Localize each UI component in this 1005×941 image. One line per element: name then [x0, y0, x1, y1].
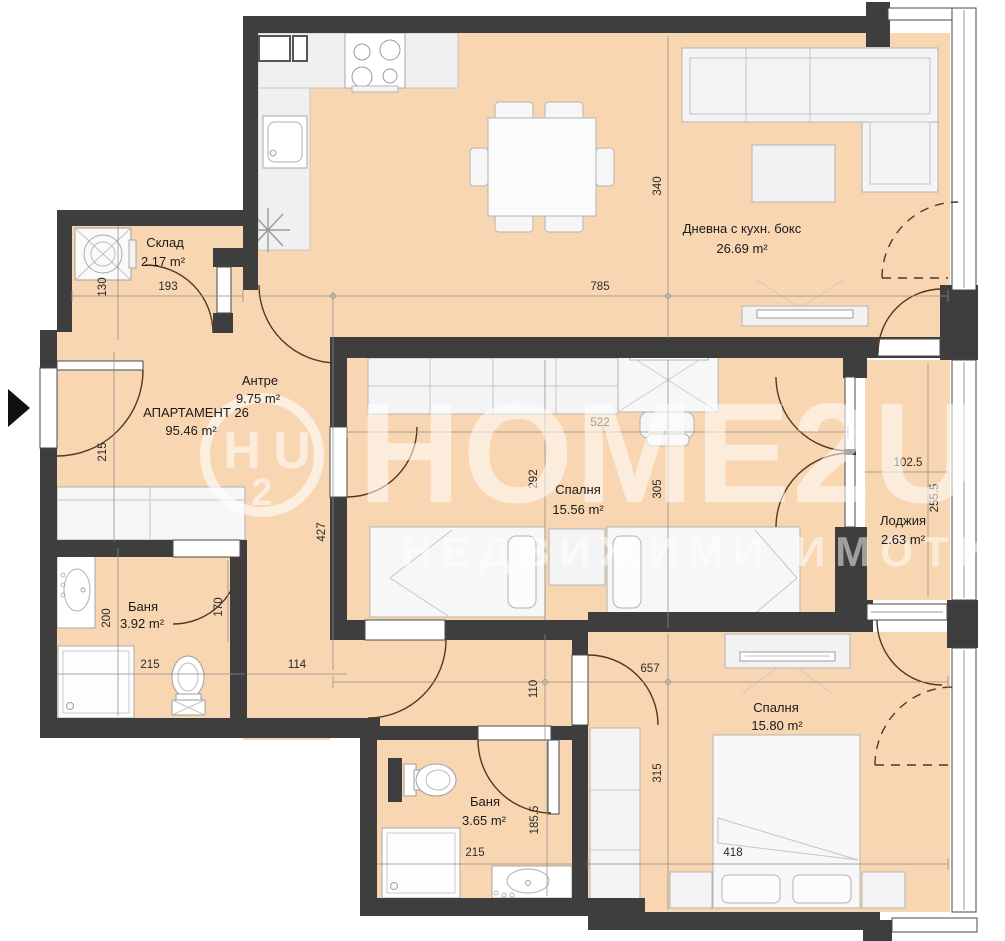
kitchen-counter-left — [258, 88, 310, 250]
wall — [57, 210, 72, 332]
bath2-sink-icon — [492, 866, 572, 898]
dim-215-bath2: 215 — [465, 847, 484, 859]
wall — [863, 920, 892, 941]
dim-418: 418 — [723, 847, 742, 859]
label-bedroom2-area: 15.80 m² — [751, 718, 803, 733]
wall — [40, 330, 57, 368]
label-hall-name: Антре — [242, 373, 278, 388]
dim-193: 193 — [158, 281, 177, 293]
bath1-vanity-icon — [57, 552, 95, 628]
label-storage-area: 2.17 m² — [141, 254, 186, 269]
label-apartment-area: 95.46 m² — [165, 423, 217, 438]
bath2-shower — [382, 828, 460, 898]
wall — [572, 725, 588, 916]
door-leaf-bath2 — [548, 740, 559, 814]
door-opening-loggia-living — [878, 339, 940, 356]
door-opening-bed2 — [572, 655, 588, 725]
wall — [588, 612, 835, 632]
wall — [213, 248, 250, 267]
label-loggia-area: 2.63 m² — [881, 532, 926, 547]
wall-cabinet2-icon — [293, 36, 307, 61]
watermark-brand: HOME2U — [358, 374, 978, 533]
label-bath2-area: 3.65 m² — [462, 813, 507, 828]
dim-114: 114 — [288, 659, 307, 671]
floor-plan-page: 193 785 130 340 215 427 522 292 305 102.… — [0, 0, 1005, 941]
entrance-arrow-icon — [8, 389, 30, 427]
wall — [57, 540, 173, 557]
dim-130: 130 — [97, 277, 109, 296]
dining-table — [470, 102, 614, 232]
wall — [40, 448, 57, 720]
label-bedroom1-area: 15.56 m² — [552, 502, 604, 517]
wall — [551, 726, 588, 740]
stove-icon — [345, 33, 405, 92]
dim-185-5: 185.5 — [529, 806, 541, 835]
door-opening-entry — [40, 368, 57, 448]
bedroom2-wardrobe — [590, 728, 640, 908]
dim-200: 200 — [101, 608, 113, 627]
dim-340: 340 — [652, 176, 664, 195]
label-bath1-area: 3.92 m² — [120, 616, 165, 631]
door-leaf-entry — [57, 361, 143, 370]
wall-cabinet-icon — [259, 36, 290, 61]
dim-215-bath1: 215 — [140, 659, 159, 671]
door-opening-bath1 — [173, 540, 240, 557]
dim-170: 170 — [213, 597, 225, 616]
wall — [330, 497, 347, 620]
bath1-toilet-icon — [172, 656, 205, 715]
label-hall-area: 9.75 m² — [236, 391, 281, 406]
dim-110: 110 — [528, 680, 540, 698]
floor-plan: 193 785 130 340 215 427 522 292 305 102.… — [0, 0, 1005, 941]
wall — [588, 912, 880, 930]
window-bedroom2-bottom — [892, 918, 977, 932]
coffee-table — [752, 145, 835, 202]
label-apartment-name: АПАРТАМЕНТ 26 — [143, 405, 249, 420]
wall — [213, 313, 233, 333]
label-bedroom2-name: Спалня — [753, 700, 798, 715]
label-living-area: 26.69 m² — [716, 241, 768, 256]
label-bedroom1-name: Спалня — [555, 482, 600, 497]
dim-657: 657 — [640, 663, 659, 675]
wall — [947, 600, 978, 648]
wall-chimney — [866, 2, 890, 47]
door-panel-divider — [217, 267, 231, 313]
washer-icon — [75, 228, 136, 280]
wall — [377, 726, 478, 740]
label-storage-name: Склад — [146, 235, 184, 250]
watermark-logo-2: 2 — [251, 472, 272, 514]
wall — [360, 730, 377, 916]
door-opening-bath2 — [478, 726, 551, 740]
door-opening-bed1-bottom — [365, 620, 445, 640]
dim-427: 427 — [316, 522, 328, 541]
dim-785: 785 — [590, 281, 609, 293]
wall — [330, 337, 850, 358]
door-opening-bed1-side — [330, 427, 347, 497]
label-bath1-name: Баня — [128, 599, 158, 614]
label-living-name: Дневна с кухн. бокс — [683, 221, 802, 236]
label-loggia-name: Лоджия — [880, 513, 926, 528]
dim-315: 315 — [652, 763, 664, 782]
dim-215-entry: 215 — [97, 442, 109, 461]
watermark-logo-u: U — [273, 422, 311, 480]
window-top-right — [888, 8, 952, 20]
kitchen-sink-icon — [263, 116, 307, 168]
wall — [40, 718, 380, 738]
bath1-shower — [58, 646, 134, 718]
wall — [57, 210, 250, 226]
label-bath2-name: Баня — [470, 794, 500, 809]
wall — [243, 16, 870, 33]
